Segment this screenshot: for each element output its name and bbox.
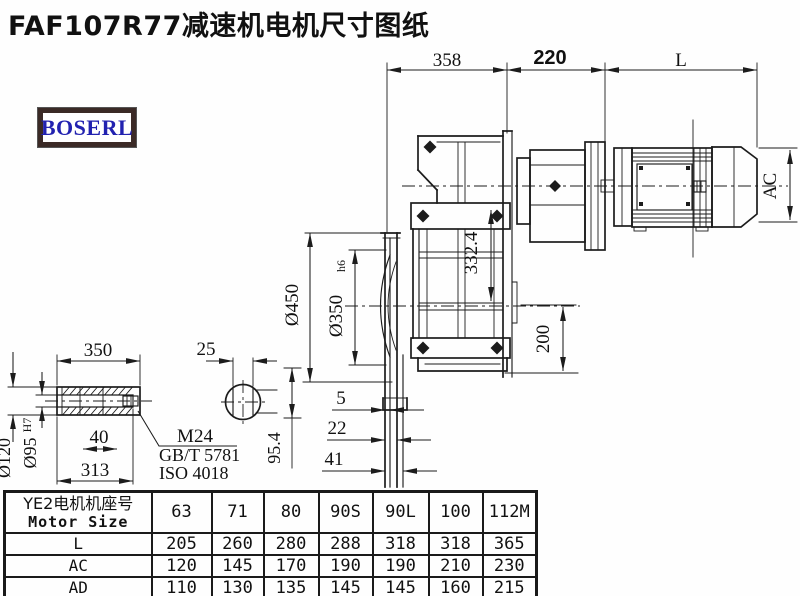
dim-ac-label: AC — [760, 173, 781, 199]
cell-L-71: 260 — [212, 533, 264, 555]
col-71: 71 — [212, 492, 264, 533]
dim-350h6-label: Ø350 — [326, 295, 347, 337]
col-90l: 90L — [373, 492, 429, 533]
technical-drawing: 358 220 L — [0, 0, 800, 490]
dim-25-label: 25 — [197, 339, 216, 360]
drawing-sheet: FAF107R77减速机电机尺寸图纸 BOSERL — [0, 0, 800, 596]
dim-95-tolerance: H7 — [20, 418, 34, 433]
cell-AD-90l: 145 — [373, 577, 429, 596]
cell-L-63: 205 — [152, 533, 212, 555]
cell-AC-63: 120 — [152, 555, 212, 577]
dim-5-22-41: 5 22 41 — [322, 388, 437, 471]
dim-313-label: 313 — [81, 460, 110, 481]
dim-450-label: Ø450 — [282, 284, 303, 326]
standard-gbt5781-label: GB/T 5781 — [159, 445, 240, 465]
dim-40-label: 40 — [90, 427, 109, 448]
header-cn: YE2电机机座号 — [6, 494, 151, 513]
motor-size-table: YE2电机机座号 Motor Size 63 71 80 90S 90L 100… — [3, 490, 538, 596]
col-63: 63 — [152, 492, 212, 533]
dim-200: 200 — [505, 305, 578, 373]
table-row-L: L 205 260 280 288 318 318 365 — [5, 533, 537, 555]
table-row-AD: AD 110 130 135 145 145 160 215 — [5, 577, 537, 596]
header-en: Motor Size — [6, 513, 151, 531]
cell-AC-90s: 190 — [319, 555, 373, 577]
dim-200-label: 200 — [533, 325, 554, 354]
cell-AD-71: 130 — [212, 577, 264, 596]
cell-AD-63: 110 — [152, 577, 212, 596]
dim-120-label: Ø120 — [0, 438, 14, 478]
dim-350h6-tolerance: h6 — [334, 260, 348, 272]
cell-L-90l: 318 — [373, 533, 429, 555]
dim-95-4-label: 95.4 — [264, 432, 284, 464]
dim-ac: AC — [759, 148, 797, 222]
table-row-AC: AC 120 145 170 190 190 210 230 — [5, 555, 537, 577]
dim-41-label: 41 — [325, 449, 344, 470]
dim-22-label: 22 — [328, 418, 347, 439]
cell-AC-80: 170 — [264, 555, 319, 577]
col-100: 100 — [429, 492, 483, 533]
row-label-AD: AD — [5, 577, 152, 596]
dim-332-label: 332.4 — [461, 231, 482, 274]
shaft-section-detail: 25 — [197, 339, 278, 420]
col-80: 80 — [264, 492, 319, 533]
dim-shaft-350-label: 350 — [84, 340, 113, 361]
col-90s: 90S — [319, 492, 373, 533]
dim-220-label: 220 — [533, 47, 566, 69]
dim-5-label: 5 — [336, 388, 346, 409]
cell-AD-112m: 215 — [483, 577, 537, 596]
cell-AC-90l: 190 — [373, 555, 429, 577]
cell-L-80: 280 — [264, 533, 319, 555]
row-label-L: L — [5, 533, 152, 555]
output-flange — [381, 233, 408, 487]
motor-adapter — [517, 142, 605, 250]
cell-AD-100: 160 — [429, 577, 483, 596]
cell-AD-90s: 145 — [319, 577, 373, 596]
cell-L-90s: 288 — [319, 533, 373, 555]
cell-AD-80: 135 — [264, 577, 319, 596]
dim-L-label: L — [675, 50, 687, 71]
standard-iso4018-label: ISO 4018 — [159, 463, 229, 483]
shaft-detail: 350 Ø120 Ø95 H7 40 313 M24 GB/T — [0, 340, 240, 484]
cell-AC-71: 145 — [212, 555, 264, 577]
dim-95-label: Ø95 — [20, 438, 40, 469]
dim-332: 332.4 — [461, 210, 491, 301]
cell-L-112m: 365 — [483, 533, 537, 555]
table-header-motor-size: YE2电机机座号 Motor Size — [5, 492, 152, 533]
motor — [601, 147, 757, 231]
cell-AC-100: 210 — [429, 555, 483, 577]
row-label-AC: AC — [5, 555, 152, 577]
bolt-m24-label: M24 — [177, 426, 213, 447]
table-header-row: YE2电机机座号 Motor Size 63 71 80 90S 90L 100… — [5, 492, 537, 533]
cell-AC-112m: 230 — [483, 555, 537, 577]
col-112m: 112M — [483, 492, 537, 533]
centerlines — [45, 120, 788, 424]
cell-L-100: 318 — [429, 533, 483, 555]
dim-358-label: 358 — [433, 50, 462, 71]
